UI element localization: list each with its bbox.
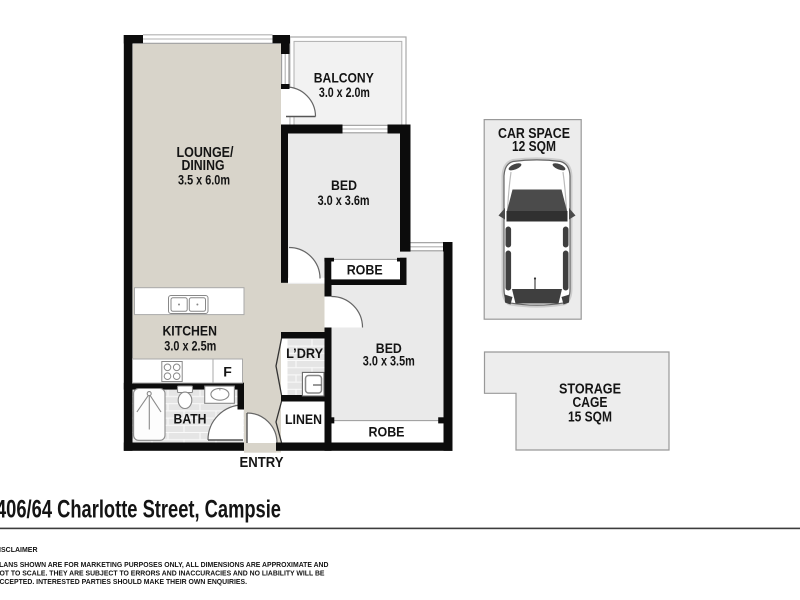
- svg-text:BED: BED: [331, 177, 357, 193]
- svg-text:LINEN: LINEN: [285, 411, 322, 427]
- svg-text:F: F: [223, 364, 232, 380]
- svg-text:3.5 x 6.0m: 3.5 x 6.0m: [178, 172, 230, 187]
- svg-text:406/64 Charlotte Street, Camps: 406/64 Charlotte Street, Campsie: [0, 496, 281, 524]
- svg-text:12 SQM: 12 SQM: [512, 139, 556, 155]
- svg-text:3.0 x 2.5m: 3.0 x 2.5m: [164, 338, 216, 353]
- svg-text:ROBE: ROBE: [347, 262, 383, 278]
- svg-text:KITCHEN: KITCHEN: [162, 322, 217, 338]
- svg-text:ROBE: ROBE: [369, 424, 405, 440]
- svg-text:15 SQM: 15 SQM: [568, 409, 612, 425]
- svg-text:L’DRY: L’DRY: [286, 345, 324, 361]
- svg-text:ENTRY: ENTRY: [240, 454, 284, 471]
- svg-text:ACCEPTED. INTERESTED PARTIES S: ACCEPTED. INTERESTED PARTIES SHOULD MAKE…: [0, 577, 247, 586]
- svg-text:BATH: BATH: [174, 410, 207, 426]
- svg-text:3.0 x 2.0m: 3.0 x 2.0m: [319, 85, 370, 100]
- svg-text:BALCONY: BALCONY: [314, 69, 375, 85]
- svg-text:DISCLAIMER: DISCLAIMER: [0, 545, 38, 554]
- svg-text:3.0 x 3.6m: 3.0 x 3.6m: [318, 193, 370, 208]
- svg-text:3.0 x 3.5m: 3.0 x 3.5m: [363, 354, 415, 369]
